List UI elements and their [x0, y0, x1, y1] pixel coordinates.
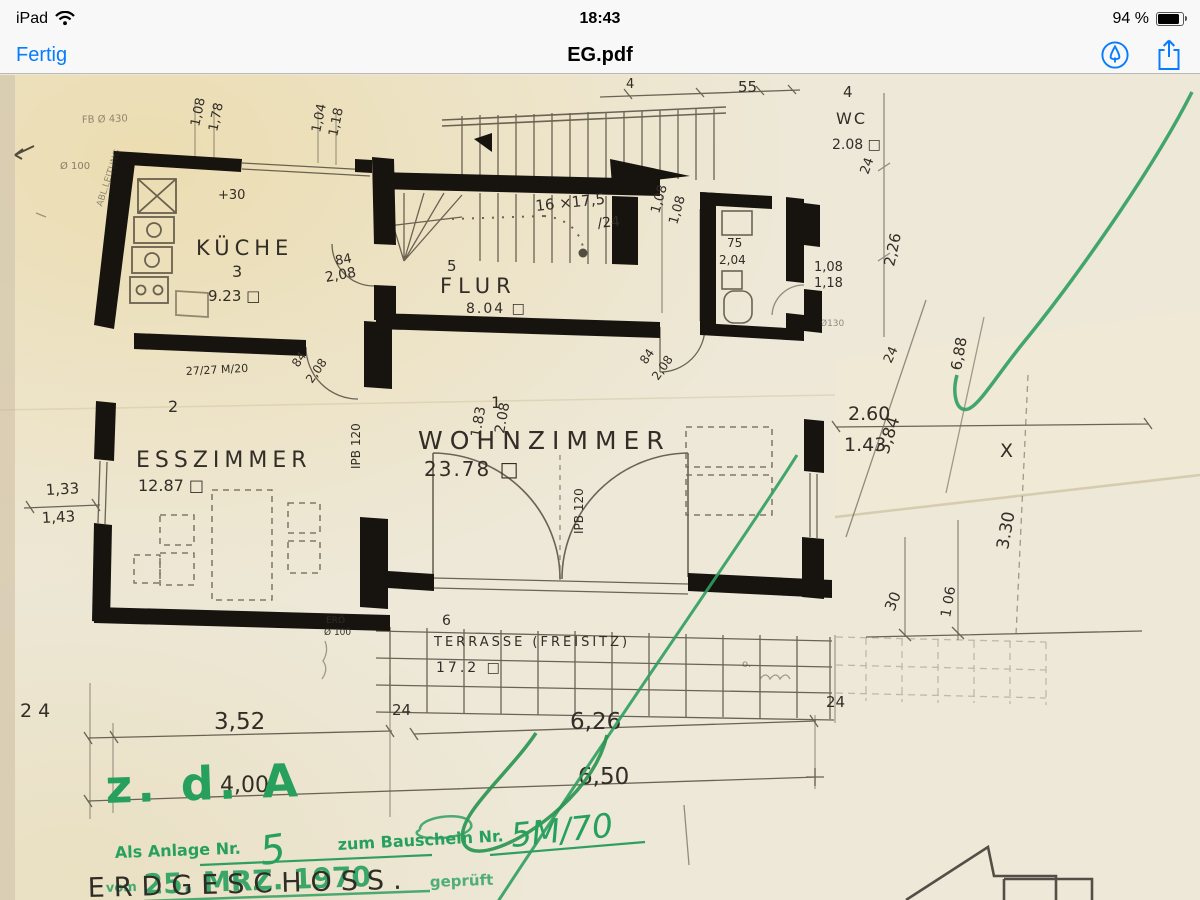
room-flur-label: FLUR [440, 274, 517, 298]
carrier-label: iPad [16, 10, 48, 28]
room-kueche-label: KÜCHE [196, 235, 293, 260]
beam-note: IPB 120 [349, 423, 363, 469]
dim: 55 [738, 78, 757, 96]
room-flur-number: 5 [447, 257, 457, 275]
wifi-icon [55, 11, 75, 26]
dim: 1,18 [814, 276, 843, 291]
dim: Ø130 [820, 318, 845, 329]
pdf-page[interactable]: KÜCHE 3 9.23 □ 5 FLUR 8.04 □ 4 WC 2.08 □… [0, 75, 1200, 900]
stair-dimension-2: /24 [597, 214, 621, 232]
faint-note: FB Ø 430 [82, 112, 128, 126]
room-terrasse-area: 17.2 □ [436, 660, 503, 676]
dim: 3,52 [214, 709, 265, 735]
battery-icon [1156, 12, 1184, 26]
room-esszimmer-number: 2 [168, 397, 178, 416]
dim: 6,26 [570, 709, 621, 735]
done-button[interactable]: Fertig [16, 44, 67, 67]
x-mark: X [1000, 440, 1013, 462]
room-wohnzimmer-area: 23.78 □ [424, 457, 521, 481]
room-wc-area: 2.08 □ [832, 137, 881, 153]
dim: 24 [392, 701, 411, 719]
room-esszimmer-label: ESSZIMMER [136, 448, 312, 473]
dim: 2,04 [719, 253, 746, 267]
dim: 2 4 [20, 700, 50, 722]
room-terrasse-number: 6 [442, 613, 451, 629]
markup-icon[interactable] [1100, 40, 1130, 70]
dim: +30 [218, 188, 245, 203]
pipe-note: ERÖ [326, 615, 345, 626]
room-kueche-area: 9.23 □ [208, 287, 260, 305]
faint-note: o. [742, 659, 751, 670]
stamp-geprueft: geprüft [430, 871, 494, 891]
dim: 1,08 [814, 260, 843, 275]
room-wohnzimmer-label: WOHNZIMMER [418, 426, 671, 455]
ipad-screen: iPad 18:43 94 % Fertig EG.pdf [0, 0, 1200, 900]
room-flur-area: 8.04 □ [466, 301, 527, 317]
dim: 24 [826, 693, 845, 711]
dim: 1,43 [41, 507, 75, 527]
room-wc-label: WC [836, 109, 867, 128]
faint-note: Ø 100 [60, 160, 90, 172]
battery-percent: 94 % [1113, 10, 1149, 28]
room-kueche-number: 3 [232, 262, 242, 281]
nav-bar: Fertig EG.pdf [0, 37, 1200, 74]
document-title: EG.pdf [0, 44, 1200, 67]
beam-note: IPB 120 [572, 488, 586, 534]
pipe-note-d: Ø 100 [324, 627, 351, 638]
room-esszimmer-area: 12.87 □ [138, 476, 204, 495]
dim: 4 [626, 77, 634, 92]
stamp-zda: z. d. A [104, 753, 303, 814]
room-terrasse-label: TERRASSE (FREISITZ) [433, 635, 630, 650]
share-icon[interactable] [1154, 38, 1184, 72]
room-wc-number: 4 [843, 83, 853, 101]
status-bar: iPad 18:43 94 % [0, 0, 1200, 37]
floorplan-drawing: KÜCHE 3 9.23 □ 5 FLUR 8.04 □ 4 WC 2.08 □… [0, 75, 1200, 900]
dim: 75 [727, 236, 742, 250]
dim: 1,33 [45, 479, 79, 499]
